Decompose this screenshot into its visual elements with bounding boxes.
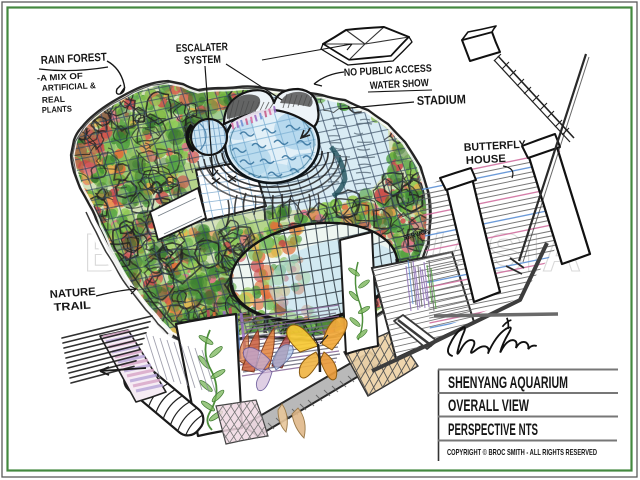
svg-text:PERSPECTIVE NTS: PERSPECTIVE NTS bbox=[448, 420, 538, 439]
svg-text:SHENYANG AQUARIUM: SHENYANG AQUARIUM bbox=[448, 373, 568, 392]
svg-text:HOUSE: HOUSE bbox=[466, 153, 507, 167]
svg-text:COPYRIGHT © BROC SMITH - ALL R: COPYRIGHT © BROC SMITH - ALL RIGHTS RESE… bbox=[447, 447, 597, 457]
svg-text:STADIUM: STADIUM bbox=[417, 92, 466, 108]
svg-text:SYSTEM: SYSTEM bbox=[184, 54, 221, 67]
svg-text:OVERALL VIEW: OVERALL VIEW bbox=[448, 396, 530, 415]
svg-text:PLANTS: PLANTS bbox=[42, 103, 73, 115]
